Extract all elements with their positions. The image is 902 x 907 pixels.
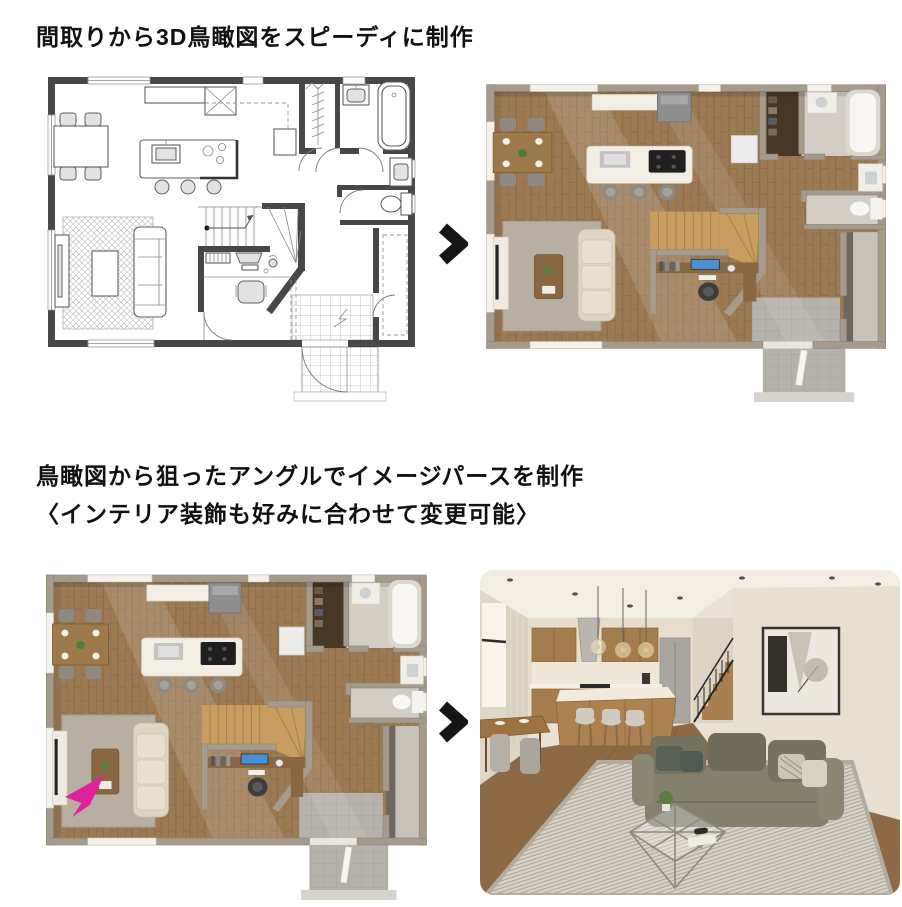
- bathroom: [343, 82, 410, 150]
- window: [482, 603, 506, 707]
- birdseye-3d: [478, 73, 902, 405]
- step1-heading: 間取りから3D鳥瞰図をスピーディに制作: [36, 18, 474, 52]
- page: 間取りから3D鳥瞰図をスピーディに制作: [0, 0, 902, 907]
- step2-heading-line1: 鳥瞰図から狙ったアングルでイメージパースを制作: [36, 457, 584, 491]
- stairs-perspective: [693, 618, 733, 723]
- chevron-right-icon: [436, 700, 468, 744]
- floor-plan-2d: [40, 65, 430, 405]
- step1-heading-text: 間取りから3D鳥瞰図をスピーディに制作: [36, 24, 474, 50]
- wall-art: [763, 628, 839, 714]
- chevron-right-icon: [436, 222, 468, 266]
- dining-set: [54, 113, 108, 180]
- kitchen: [140, 87, 296, 194]
- birdseye-3d-with-camera: [38, 563, 442, 903]
- entry-porch: [292, 295, 386, 401]
- living-room: [55, 217, 166, 329]
- closet: [306, 83, 324, 145]
- step2-heading-line1-text: 鳥瞰図から狙ったアングルでイメージパースを制作: [36, 463, 584, 489]
- step2-heading-line2-text: 〈インテリア装飾も好みに合わせて変更可能〉: [36, 501, 540, 527]
- interior-perspective: [480, 570, 900, 895]
- step2-heading-line2: 〈インテリア装飾も好みに合わせて変更可能〉: [36, 495, 540, 529]
